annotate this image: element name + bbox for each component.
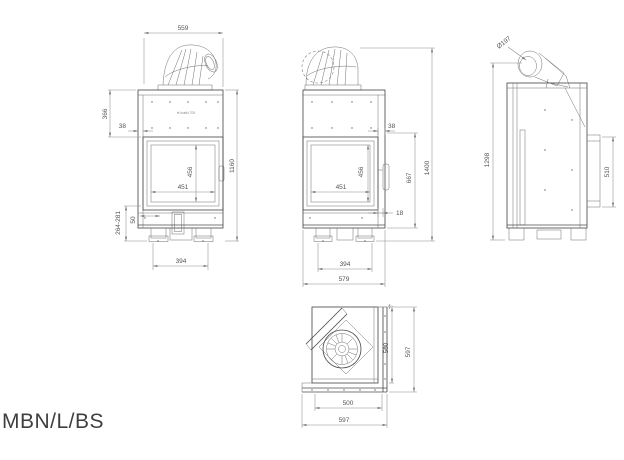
dim-front-leg-height-range: 264-281: [115, 211, 122, 235]
dim-top-total-depth: 597: [405, 346, 412, 357]
dim-center-side-inset: 38: [388, 123, 396, 130]
rear-panel: [587, 135, 600, 207]
top-view: 500 597 500 597: [302, 304, 417, 428]
dim-front-door-inset: 38: [119, 123, 127, 130]
dim-side-flue-diameter: Ø197: [496, 35, 513, 51]
side-view: Ø197 1298 510: [484, 35, 616, 240]
brand-logo: ⊕ kratki 700: [177, 111, 196, 115]
dim-center-base-step: 18: [396, 210, 404, 217]
front-view: ⊕ kratki 700 559: [102, 25, 239, 270]
dim-center-total-height: 1400: [424, 160, 431, 175]
dim-center-door-section-height: 667: [406, 172, 413, 183]
side-flue-pipe-icon: [518, 51, 570, 88]
dim-front-feet-spacing: 394: [176, 258, 187, 265]
dim-front-top-width: 559: [178, 25, 189, 32]
dim-side-total-height: 1298: [484, 152, 491, 167]
center-view: 38 456 451 667 1400 18 394: [302, 47, 435, 287]
top-flue-turbine-icon: [323, 330, 361, 368]
dim-center-total-width: 579: [339, 276, 350, 283]
side-dimensions: Ø197 1298 510: [484, 35, 616, 240]
side-body: [507, 83, 600, 240]
technical-drawing-canvas: ⊕ kratki 700 559: [0, 0, 624, 460]
dim-top-total-width: 597: [339, 417, 350, 424]
dim-side-rear-panel-height: 510: [604, 166, 611, 177]
dim-top-body-width: 500: [343, 400, 354, 407]
technical-drawing-page: ⊕ kratki 700 559: [0, 0, 624, 460]
center-flue-elbow-icon: [302, 47, 361, 90]
dim-front-glass-width: 451: [178, 184, 189, 191]
model-title: MBN/L/BS: [2, 410, 104, 433]
center-base-and-legs: [303, 213, 385, 242]
center-door: [303, 137, 389, 210]
dim-front-slot-width: 50: [130, 216, 137, 224]
dim-center-glass-height: 456: [358, 166, 365, 177]
front-base-and-legs: [138, 212, 223, 242]
front-door: [143, 137, 224, 210]
dim-front-total-height: 1160: [229, 159, 236, 173]
top-dimensions: 500 597 500 597: [302, 304, 417, 428]
front-dimensions: 559 366 38 456 451 1160 50 264-281: [102, 25, 239, 270]
dim-center-glass-width: 451: [336, 184, 347, 191]
front-flue-elbow-icon: [158, 45, 220, 90]
center-dimensions: 38 456 451 667 1400 18 394: [303, 48, 435, 287]
center-body: [303, 90, 385, 228]
door-handle: [383, 164, 389, 190]
dim-center-feet-spacing: 394: [340, 261, 351, 268]
dim-front-upper-section: 366: [102, 108, 109, 119]
top-body: [302, 307, 387, 392]
dim-top-body-depth: 500: [383, 342, 390, 353]
dim-front-glass-height: 456: [187, 166, 194, 177]
